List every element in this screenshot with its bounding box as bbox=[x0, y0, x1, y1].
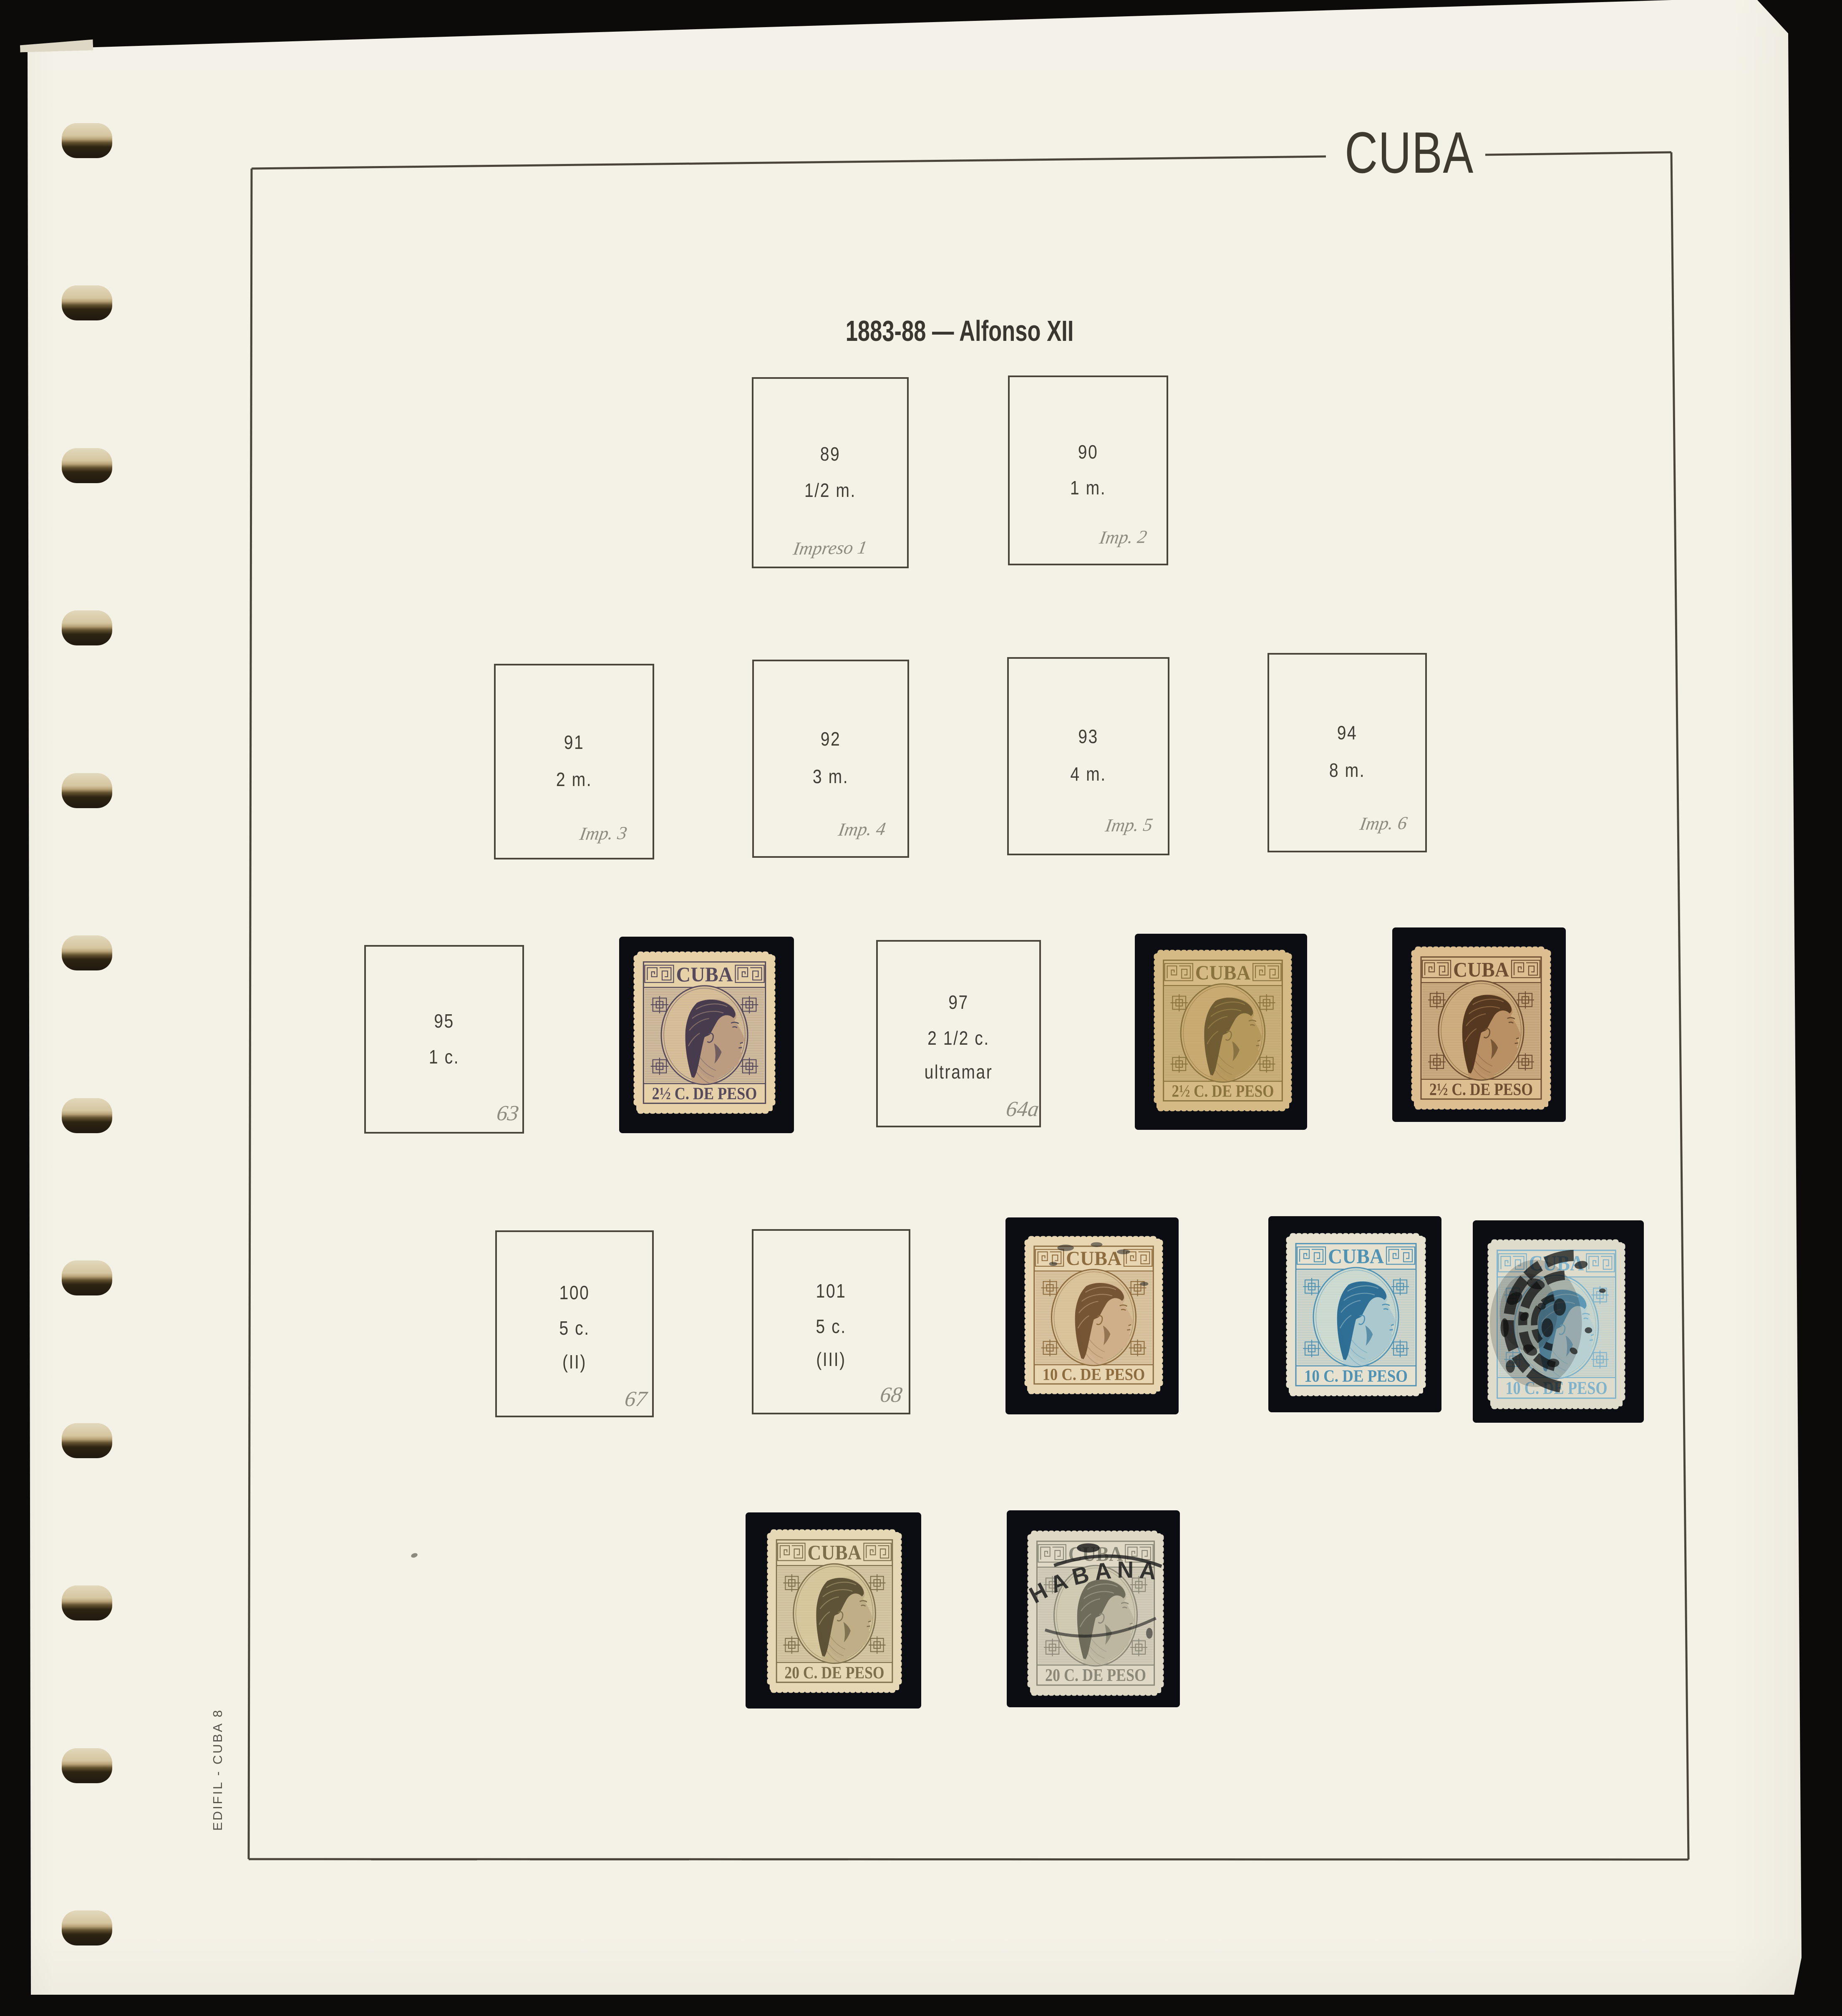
svg-text:2½ C. DE PESO: 2½ C. DE PESO bbox=[1429, 1080, 1533, 1099]
svg-text:CUBA: CUBA bbox=[807, 1541, 861, 1564]
svg-text:20 C. DE PESO: 20 C. DE PESO bbox=[1045, 1665, 1146, 1685]
svg-text:2½ C. DE PESO: 2½ C. DE PESO bbox=[652, 1084, 757, 1103]
svg-text:2½ C. DE PESO: 2½ C. DE PESO bbox=[1172, 1081, 1274, 1101]
svg-text:CUBA: CUBA bbox=[1195, 961, 1251, 984]
svg-text:CUBA: CUBA bbox=[1328, 1245, 1384, 1268]
svg-text:CUBA: CUBA bbox=[1453, 958, 1509, 981]
svg-text:CUBA: CUBA bbox=[676, 963, 733, 986]
svg-text:10 C. DE PESO: 10 C. DE PESO bbox=[1304, 1367, 1408, 1386]
svg-text:CUBA: CUBA bbox=[1066, 1247, 1121, 1270]
svg-text:10 C. DE PESO: 10 C. DE PESO bbox=[1043, 1365, 1145, 1383]
svg-text:20 C. DE PESO: 20 C. DE PESO bbox=[784, 1663, 884, 1682]
